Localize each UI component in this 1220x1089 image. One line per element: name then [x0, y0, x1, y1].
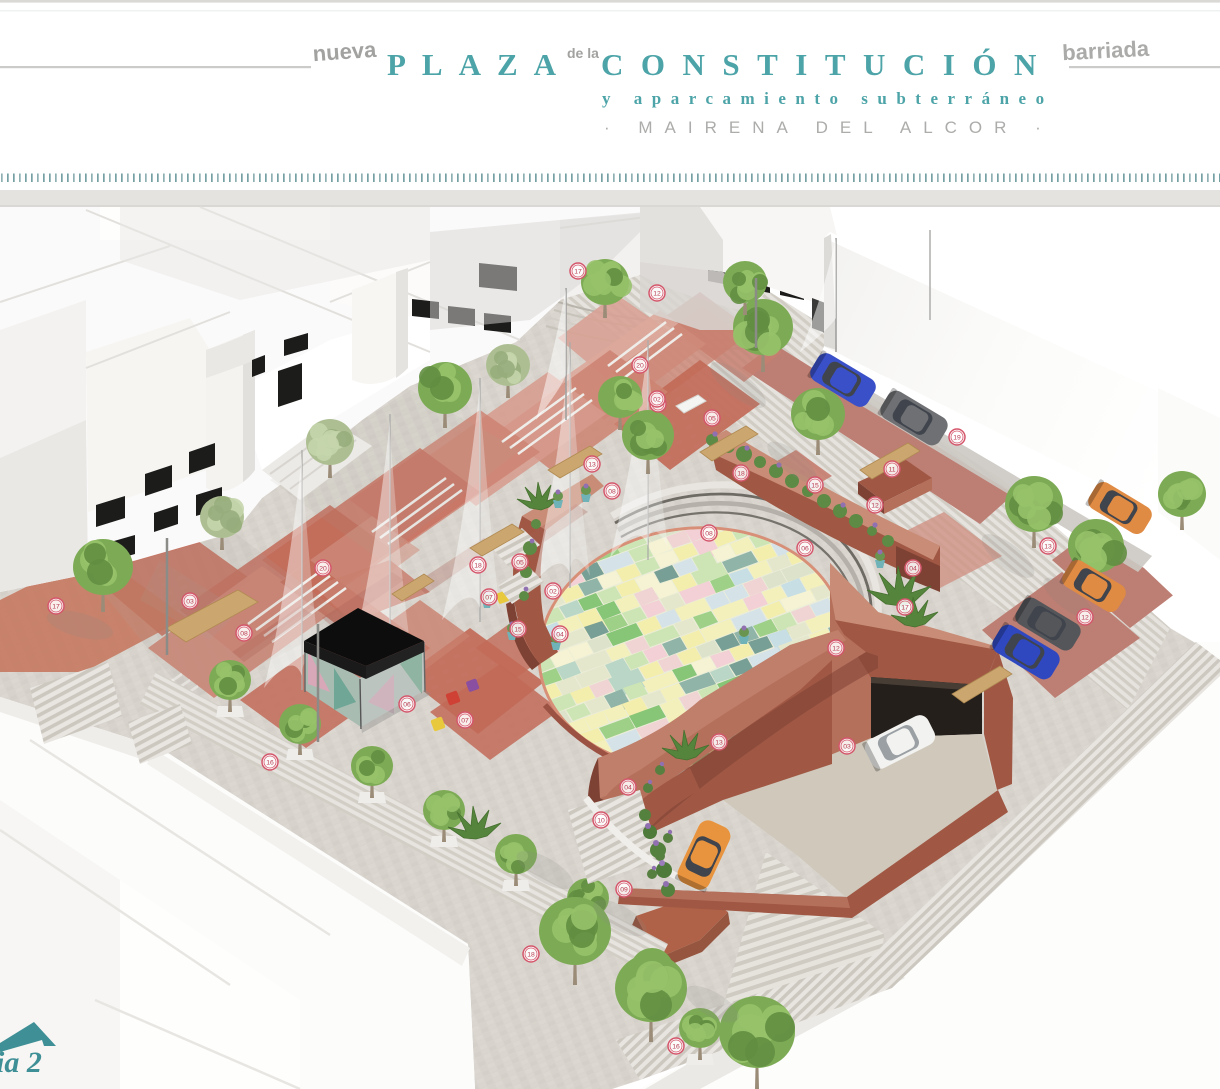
svg-text:17: 17: [901, 604, 909, 611]
svg-text:15: 15: [811, 482, 819, 489]
svg-text:08: 08: [240, 630, 248, 637]
svg-text:y aparcamiento subterráneo: y aparcamiento subterráneo: [602, 89, 1054, 108]
svg-text:13: 13: [588, 461, 596, 468]
svg-text:02: 02: [549, 588, 557, 595]
svg-text:nueva: nueva: [312, 37, 378, 66]
svg-text:de la: de la: [567, 45, 599, 61]
svg-text:· MAIRENA DEL ALCOR ·: · MAIRENA DEL ALCOR ·: [604, 118, 1053, 137]
svg-text:PLAZA: PLAZA: [387, 47, 572, 82]
svg-text:03: 03: [843, 743, 851, 750]
svg-text:03: 03: [186, 598, 194, 605]
svg-text:09: 09: [620, 886, 628, 893]
svg-text:11: 11: [888, 466, 895, 473]
svg-text:04: 04: [556, 631, 564, 638]
svg-text:CONSTITUCIÓN: CONSTITUCIÓN: [601, 47, 1054, 82]
svg-text:ia 2: ia 2: [0, 1046, 42, 1079]
svg-text:06: 06: [403, 701, 411, 708]
svg-text:12: 12: [1081, 614, 1089, 621]
svg-text:16: 16: [266, 759, 274, 766]
svg-text:12: 12: [653, 290, 661, 297]
svg-text:18: 18: [737, 470, 745, 477]
svg-text:16: 16: [672, 1043, 680, 1050]
svg-text:08: 08: [705, 530, 713, 537]
svg-text:19: 19: [953, 434, 961, 441]
svg-text:04: 04: [909, 565, 917, 572]
svg-text:13: 13: [1044, 543, 1052, 550]
svg-text:barriada: barriada: [1062, 36, 1151, 66]
svg-text:18: 18: [527, 951, 535, 958]
svg-text:02: 02: [653, 396, 661, 403]
svg-text:07: 07: [485, 594, 493, 601]
svg-text:12: 12: [871, 502, 879, 509]
svg-text:15: 15: [514, 626, 522, 633]
svg-text:17: 17: [52, 603, 60, 610]
svg-text:12: 12: [832, 645, 840, 652]
svg-text:05: 05: [708, 415, 716, 422]
svg-text:18: 18: [474, 562, 482, 569]
svg-text:08: 08: [608, 488, 616, 495]
svg-text:05: 05: [516, 559, 524, 566]
svg-text:20: 20: [636, 362, 644, 369]
svg-text:06: 06: [801, 545, 809, 552]
svg-text:10: 10: [597, 817, 605, 824]
svg-text:04: 04: [624, 784, 632, 791]
svg-text:20: 20: [319, 565, 327, 572]
svg-text:17: 17: [574, 268, 582, 275]
svg-text:13: 13: [715, 739, 723, 746]
svg-text:07: 07: [461, 717, 469, 724]
